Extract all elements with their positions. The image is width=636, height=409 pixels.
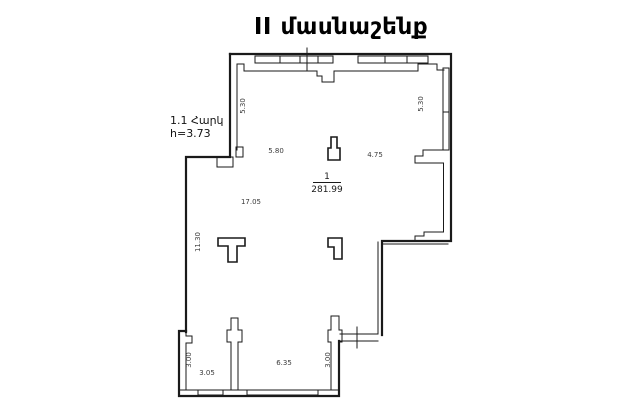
column-right-upper xyxy=(415,150,449,163)
column-left-notch xyxy=(217,157,233,167)
window-right-wall xyxy=(443,68,449,150)
window-bottom-middle xyxy=(247,390,318,395)
window-top-right xyxy=(358,56,428,63)
floor-plan-page: { "title": "II մասնաշենք", "colors": { "… xyxy=(0,0,636,409)
room-number: 1 xyxy=(324,172,330,182)
dimension-labels: 5.30 5.30 5.80 4.75 17.05 11.30 3.00 3.0… xyxy=(185,96,425,377)
inner-walls xyxy=(179,48,449,395)
interior-columns xyxy=(218,137,342,262)
room-area: 281.99 xyxy=(311,185,343,195)
dim-lower-left-width: 3.05 xyxy=(199,369,215,377)
dim-lower-right-pillar: 3.00 xyxy=(324,352,332,368)
floor-height-label: h=3.73 xyxy=(170,127,211,140)
dim-lower-left-pillar: 3.00 xyxy=(185,352,193,368)
column-bottle-shape xyxy=(328,137,340,160)
floor-label: 1.1 Հարկ xyxy=(170,114,224,127)
column-flag-shape xyxy=(328,238,342,259)
wall-outline-bottom xyxy=(179,331,339,396)
dim-left-wall-height: 11.30 xyxy=(194,232,202,252)
dim-upper-left-width: 5.80 xyxy=(268,147,284,155)
dim-upper-right-wall: 5.30 xyxy=(417,96,425,112)
dim-hall-width: 17.05 xyxy=(241,198,261,206)
dim-upper-right-width: 4.75 xyxy=(367,151,383,159)
floor-info: 1.1 Հարկ h=3.73 xyxy=(170,114,224,140)
outer-walls xyxy=(179,54,451,396)
wall-outline-left xyxy=(186,54,230,332)
window-bottom-left xyxy=(198,390,223,395)
floor-plan-canvas: 5.30 5.30 5.80 4.75 17.05 11.30 3.00 3.0… xyxy=(0,0,636,409)
room-label: 1 281.99 xyxy=(311,172,343,195)
pillar-bottom-middle xyxy=(227,318,242,390)
dim-lower-middle-width: 6.35 xyxy=(276,359,292,367)
window-top-left xyxy=(255,56,333,63)
dim-upper-left-wall: 5.30 xyxy=(239,98,247,114)
column-t-shape xyxy=(218,238,245,262)
wall-inner-top xyxy=(237,64,444,150)
column-right-lower xyxy=(415,232,443,240)
